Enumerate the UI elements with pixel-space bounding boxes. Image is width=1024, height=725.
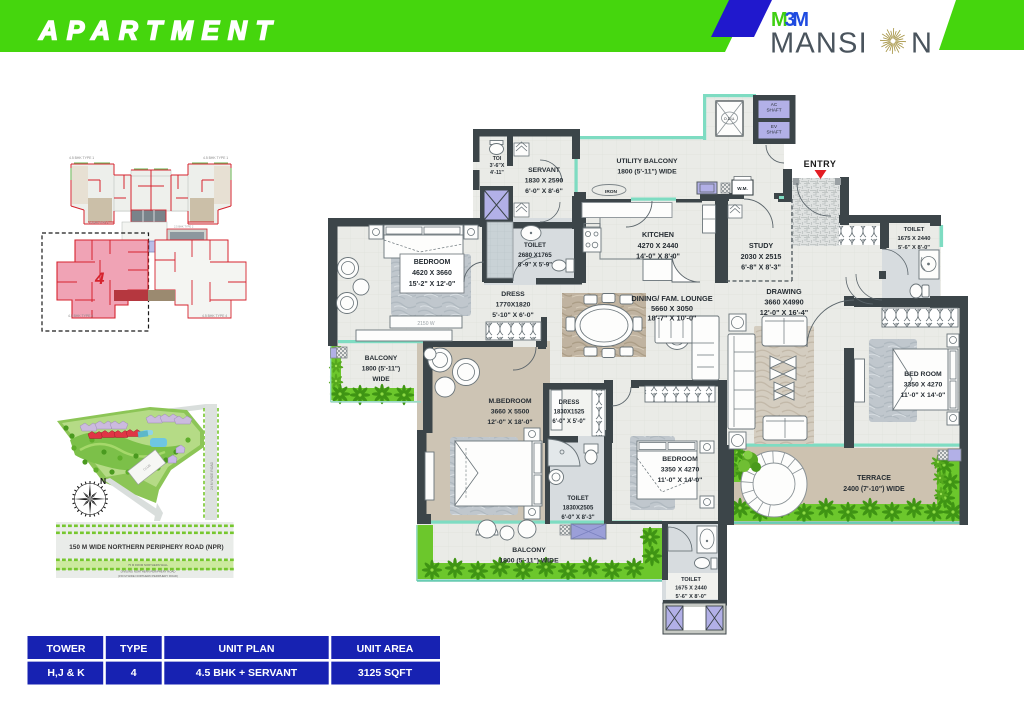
svg-text:4.5 BHK TYPE 4: 4.5 BHK TYPE 4 (68, 314, 93, 318)
svg-text:W.M.: W.M. (737, 186, 747, 191)
svg-text:BEDROOM3350 X 427011'-0" X 14': BEDROOM3350 X 427011'-0" X 14'-0" (658, 456, 703, 484)
svg-text:N: N (100, 476, 106, 486)
svg-text:IRON: IRON (605, 189, 618, 195)
svg-text:DRAWING3660 X499012'-0" X 16'-: DRAWING3660 X499012'-0" X 16'-4" (760, 287, 809, 317)
svg-text:DIVIDING NORTHERN PERIPHERY RO: DIVIDING NORTHERN PERIPHERY ROAD (121, 570, 176, 574)
svg-text:H,J & K: H,J & K (47, 667, 85, 679)
svg-text:3125 SQFT: 3125 SQFT (358, 667, 413, 679)
svg-text:4: 4 (94, 269, 105, 288)
svg-text:BEDROOM4620 X 366015'-2" X 12': BEDROOM4620 X 366015'-2" X 12'-0" (409, 259, 456, 288)
svg-text:4.5 BHK + SERVANT: 4.5 BHK + SERVANT (196, 667, 298, 679)
svg-text:BED ROOM3350 X 427011'-0" X 14: BED ROOM3350 X 427011'-0" X 14'-0" (901, 371, 946, 399)
svg-text:(150 M WIDE NORTHERN PERIPHERY: (150 M WIDE NORTHERN PERIPHERY ROAD) (118, 574, 178, 578)
svg-text:2150 W: 2150 W (417, 321, 435, 327)
svg-text:APARTMENT: APARTMENT (38, 16, 280, 46)
svg-text:2.5 BHK TYPE 2: 2.5 BHK TYPE 2 (174, 225, 194, 229)
svg-text:UNIT PLAN: UNIT PLAN (219, 643, 275, 655)
svg-text:MANSI: MANSI (770, 28, 868, 60)
svg-text:4.5 BHK TYPE 4: 4.5 BHK TYPE 4 (202, 314, 227, 318)
svg-text:4.5 BHK TYPE 1: 4.5 BHK TYPE 1 (203, 156, 228, 160)
svg-text:SERVANT1830 X 25906'-0" X 8'-6: SERVANT1830 X 25906'-0" X 8'-6" (525, 167, 564, 195)
svg-text:O.D.U.: O.D.U. (724, 117, 736, 121)
svg-text:TOWER: TOWER (47, 643, 86, 655)
svg-text:4: 4 (131, 667, 137, 679)
svg-text:4.5 BHK TYPE 1: 4.5 BHK TYPE 1 (69, 156, 94, 160)
svg-text:N: N (911, 28, 932, 60)
svg-text:M.BEDROOM3660 X 550012'-0" X 1: M.BEDROOM3660 X 550012'-0" X 18'-0" (487, 398, 532, 426)
svg-text:KITCHEN4270 X 244014'-0" X 8'-: KITCHEN4270 X 244014'-0" X 8'-0" (636, 230, 680, 261)
svg-text:UNIT AREA: UNIT AREA (357, 643, 414, 655)
svg-text:24 M WIDE ROAD: 24 M WIDE ROAD (210, 461, 214, 490)
svg-text:TYPE: TYPE (120, 643, 147, 655)
svg-text:ENTRY: ENTRY (804, 159, 837, 169)
svg-text:75 M FROM NORTHERN WALL: 75 M FROM NORTHERN WALL (128, 563, 169, 567)
svg-text:150 M WIDE NORTHERN PERIPHERY: 150 M WIDE NORTHERN PERIPHERY ROAD (NPR) (69, 544, 223, 551)
svg-text:2.5 BHK TYPE 2: 2.5 BHK TYPE 2 (89, 221, 109, 225)
